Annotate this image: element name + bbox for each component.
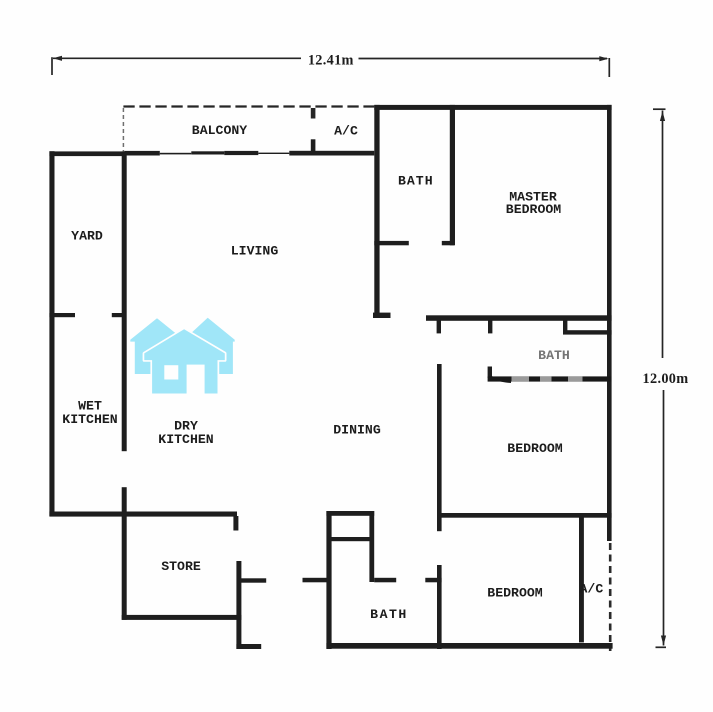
svg-text:DINING: DINING: [333, 423, 381, 438]
svg-text:BALCONY: BALCONY: [192, 123, 247, 138]
svg-text:BEDROOM: BEDROOM: [506, 202, 561, 217]
svg-text:YARD: YARD: [71, 229, 103, 244]
svg-text:BEDROOM: BEDROOM: [487, 586, 542, 601]
svg-text:BATH: BATH: [538, 348, 570, 363]
svg-text:BATH: BATH: [370, 607, 408, 622]
svg-text:12.00m: 12.00m: [643, 371, 689, 387]
svg-text:A/C: A/C: [334, 124, 358, 139]
svg-text:BEDROOM: BEDROOM: [507, 441, 562, 456]
svg-text:KITCHEN: KITCHEN: [158, 432, 213, 447]
svg-text:STORE: STORE: [161, 559, 201, 574]
svg-text:12.41m: 12.41m: [308, 53, 354, 69]
svg-text:A/C: A/C: [580, 582, 604, 597]
svg-text:KITCHEN: KITCHEN: [62, 412, 117, 427]
svg-text:LIVING: LIVING: [231, 244, 279, 259]
svg-text:BATH: BATH: [398, 173, 434, 188]
